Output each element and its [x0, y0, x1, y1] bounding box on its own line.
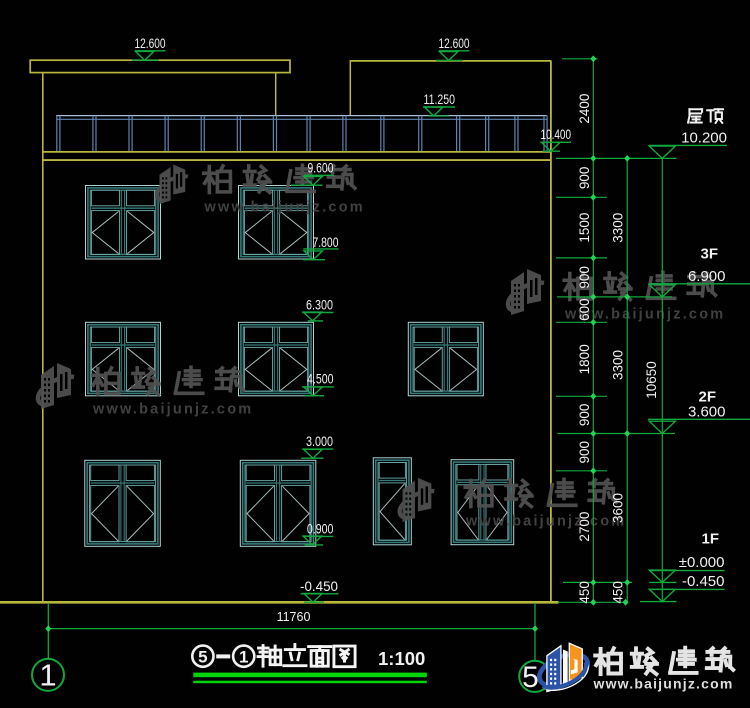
svg-text:2700: 2700	[577, 512, 592, 542]
svg-text:1:100: 1:100	[378, 648, 425, 669]
svg-text:450: 450	[577, 581, 592, 604]
svg-text:www.baijunjz.com: www.baijunjz.com	[204, 200, 365, 216]
svg-text:±0.000: ±0.000	[679, 554, 725, 571]
svg-text:3.000: 3.000	[306, 434, 333, 449]
svg-text:1F: 1F	[702, 531, 720, 548]
svg-text:-0.450: -0.450	[300, 579, 338, 594]
svg-text:900: 900	[577, 404, 592, 427]
svg-text:6.900: 6.900	[688, 268, 726, 285]
svg-text:12.600: 12.600	[439, 36, 470, 51]
svg-text:900: 900	[577, 167, 592, 190]
svg-text:5: 5	[522, 661, 539, 694]
svg-text:1800: 1800	[577, 344, 592, 374]
svg-text:7.800: 7.800	[313, 235, 339, 250]
svg-text:3300: 3300	[611, 350, 626, 380]
svg-text:1500: 1500	[577, 213, 592, 243]
svg-text:3F: 3F	[701, 246, 719, 263]
svg-text:3300: 3300	[611, 213, 626, 243]
svg-text:10.200: 10.200	[681, 130, 727, 147]
svg-text:www.baijunjz.com: www.baijunjz.com	[92, 402, 253, 418]
svg-text:0.900: 0.900	[307, 522, 334, 537]
svg-text:10.400: 10.400	[541, 127, 572, 142]
svg-text:2400: 2400	[577, 94, 592, 124]
svg-text:11.250: 11.250	[424, 92, 456, 107]
svg-text:6.300: 6.300	[306, 298, 333, 313]
svg-text:12.600: 12.600	[135, 36, 166, 51]
svg-text:900: 900	[577, 266, 592, 289]
svg-text:4.500: 4.500	[307, 372, 334, 387]
svg-text:450: 450	[611, 581, 626, 604]
svg-text:600: 600	[577, 298, 592, 321]
svg-text:1: 1	[39, 658, 56, 693]
svg-text:3600: 3600	[611, 493, 626, 523]
svg-text:11760: 11760	[277, 610, 311, 624]
svg-text:1: 1	[239, 647, 248, 666]
svg-text:900: 900	[577, 441, 592, 464]
svg-text:5: 5	[198, 647, 207, 666]
svg-text:3.600: 3.600	[688, 404, 726, 421]
svg-text:9.600: 9.600	[308, 160, 334, 175]
svg-text:www.baijunjz.com: www.baijunjz.com	[593, 676, 734, 692]
svg-text:10650: 10650	[644, 361, 659, 399]
svg-text:-0.450: -0.450	[682, 573, 725, 590]
svg-text:www.baijunjz.com: www.baijunjz.com	[465, 514, 626, 530]
